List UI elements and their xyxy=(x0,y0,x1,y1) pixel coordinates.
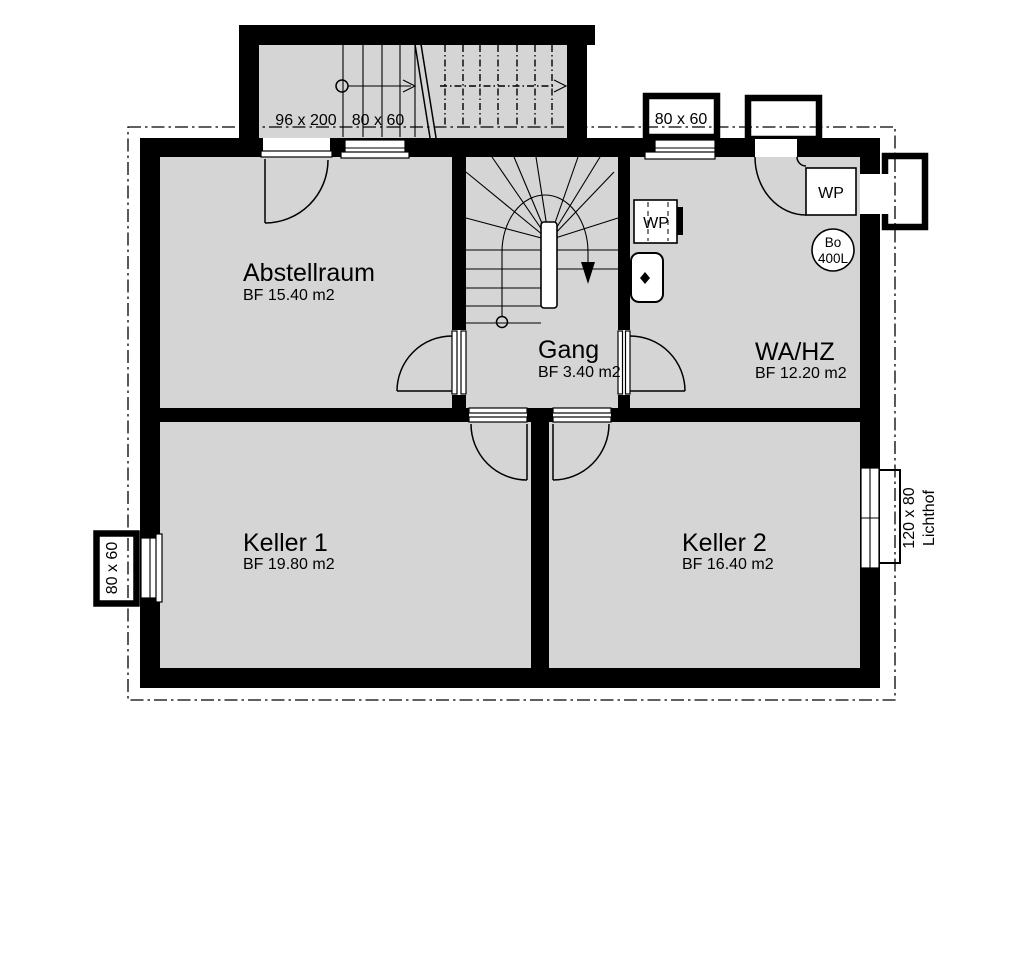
heat-pump-inner-label: WP xyxy=(643,215,669,232)
room-name: Abstellraum xyxy=(243,259,375,287)
room-name: Keller 1 xyxy=(243,529,328,557)
room-label-keller1: Keller 1 BF 19.80 m2 xyxy=(243,529,335,573)
outer-wall-right xyxy=(860,138,880,688)
entry-door-threshold xyxy=(261,151,332,157)
boiler-label: Bo xyxy=(825,235,842,250)
window-top-left-sill xyxy=(341,152,409,158)
room-area: BF 15.40 m2 xyxy=(243,287,335,304)
room-name: WA/HZ xyxy=(755,338,835,366)
door-frame xyxy=(461,331,466,394)
duct-opening-top xyxy=(755,139,797,157)
door-frame xyxy=(452,331,457,394)
room-label-wahz: WA/HZ BF 12.20 m2 xyxy=(755,338,847,382)
room-area: BF 3.40 m2 xyxy=(538,364,621,381)
lichthof-well xyxy=(878,470,900,563)
door-frame xyxy=(469,408,527,413)
stair-enclosure-wall-top xyxy=(239,25,595,45)
mid-wall-west xyxy=(160,408,469,422)
keller1-window-dimension: 80 x 60 xyxy=(104,542,121,595)
mid-wall-east xyxy=(611,408,860,422)
door-frame xyxy=(469,417,527,422)
door-frame xyxy=(618,331,623,394)
window-top-right-sill xyxy=(645,152,715,159)
door-frame xyxy=(626,331,631,394)
room-area: BF 19.80 m2 xyxy=(243,556,335,573)
stairwell-wall-right-stub xyxy=(618,395,630,409)
duct-opening-right xyxy=(860,174,890,214)
stair-enclosure-wall-right xyxy=(567,25,587,138)
floor-plan-page: Abstellraum BF 15.40 m2 Gang BF 3.40 m2 … xyxy=(0,0,1024,968)
heat-pump-outer-label: WP xyxy=(818,185,844,202)
entry-door-dimension: 96 x 200 xyxy=(275,112,336,129)
door-frame xyxy=(553,417,611,422)
room-area: BF 16.40 m2 xyxy=(682,556,774,573)
stair-window-dimension: 80 x 60 xyxy=(352,112,405,129)
stairwell-wall-left-stub xyxy=(452,395,466,409)
wahz-window-dimension: 80 x 60 xyxy=(655,111,708,128)
room-area: BF 12.20 m2 xyxy=(755,365,847,382)
floor-plan-canvas: Abstellraum BF 15.40 m2 Gang BF 3.40 m2 … xyxy=(0,0,1024,968)
keller-divider-wall xyxy=(531,414,549,668)
door-frame xyxy=(553,408,611,413)
stairwell-wall-right xyxy=(618,157,630,330)
stairwell-wall-left xyxy=(452,157,466,330)
room-label-keller2: Keller 2 BF 16.40 m2 xyxy=(682,529,774,573)
lichthof-dimension: 120 x 80 xyxy=(901,487,918,548)
window-left-sill xyxy=(156,534,162,602)
room-name: Keller 2 xyxy=(682,529,767,557)
lichthof-label: Lichthof xyxy=(921,489,938,546)
floor-drain-unit xyxy=(631,253,663,302)
vent-well-top-right xyxy=(748,98,819,139)
outer-wall-left xyxy=(140,138,160,688)
room-name: Gang xyxy=(538,336,599,364)
vent-well-right xyxy=(885,156,925,227)
outer-wall-bottom xyxy=(140,668,880,688)
boiler-volume-label: 400L xyxy=(818,251,849,266)
stair-spine-wall xyxy=(541,222,557,308)
heat-pump-connector xyxy=(677,207,683,235)
